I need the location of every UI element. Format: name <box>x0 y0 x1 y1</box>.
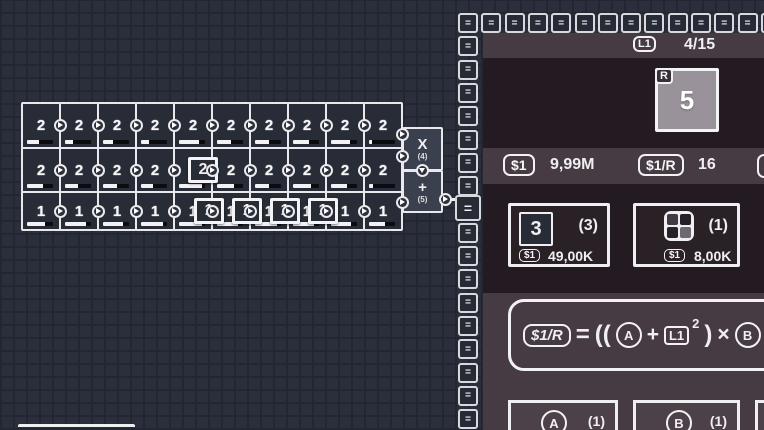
conveyor-tile: = <box>551 13 571 33</box>
cell-progress-bar <box>141 222 167 226</box>
belt-connector-icon <box>282 164 295 177</box>
conveyor-tile: = <box>458 60 478 80</box>
conveyor-tile: = <box>458 13 478 33</box>
belt-connector-icon <box>168 164 181 177</box>
cell-value: 2 <box>151 117 159 134</box>
cell-value: 2 <box>379 117 387 134</box>
conveyor-tile: = <box>458 269 478 289</box>
conveyor-tile: = <box>621 13 641 33</box>
belt-connector-icon <box>244 119 257 132</box>
rate-value: 16 <box>698 156 716 174</box>
tile3-cost: 49,00K <box>548 248 593 264</box>
cell-progress-bar <box>65 222 91 226</box>
formula-text: (( <box>595 321 611 349</box>
cell-progress-bar <box>179 184 205 188</box>
upgrade-card-cutoff[interactable] <box>755 400 764 430</box>
cell-value: 2 <box>341 162 349 179</box>
tile3-count: (3) <box>578 217 598 235</box>
cell-progress-bar <box>331 140 357 144</box>
cell-progress-bar <box>141 140 167 144</box>
card-a-count: (1) <box>588 413 605 429</box>
cell-value: 1 <box>37 203 45 220</box>
stats-bar: $1 9,99M $1/R 16 <box>483 148 764 184</box>
cutoff-badge <box>757 154 764 178</box>
belt-connector-icon <box>244 205 257 218</box>
cell-value: 2 <box>75 117 83 134</box>
rate-formula: $1/R =((A+L12)×B) <box>508 299 764 371</box>
formula-result-badge: $1/R <box>523 324 571 347</box>
belt-connector-icon <box>92 164 105 177</box>
tile3-preview: 3 <box>519 212 553 246</box>
card-b-count: (1) <box>710 413 727 429</box>
cell-progress-bar <box>293 140 319 144</box>
cell-value: 2 <box>113 117 121 134</box>
board-cost-badge: $1 <box>664 249 685 262</box>
shop-card-tile3[interactable]: 3 (3) $1 49,00K <box>508 203 610 267</box>
cell-value: 2 <box>189 117 197 134</box>
belt-connector-icon <box>54 205 67 218</box>
cell-value: 2 <box>227 162 235 179</box>
conveyor-tile: = <box>458 339 478 359</box>
cell-progress-bar <box>141 184 167 188</box>
offscreen-box-edge <box>18 424 135 430</box>
multiply-label: X <box>417 137 427 152</box>
money-badge: $1 <box>503 154 535 176</box>
cell-progress-bar <box>65 140 91 144</box>
board-count: (1) <box>708 217 728 235</box>
circled-a-icon: A <box>616 322 642 348</box>
add-count: (5) <box>418 195 428 204</box>
cell-progress-bar <box>27 184 53 188</box>
multiply-count: (4) <box>418 152 428 161</box>
belt-connector-icon <box>439 193 452 206</box>
conveyor-tile: = <box>644 13 664 33</box>
belt-connector-icon <box>396 128 409 141</box>
cell-progress-bar <box>293 184 319 188</box>
conveyor-tile: = <box>458 153 478 173</box>
cell-value: 2 <box>75 162 83 179</box>
belt-connector-icon <box>282 205 295 218</box>
cell-progress-bar <box>255 140 281 144</box>
belt-connector-icon <box>54 119 67 132</box>
cell-value: 2 <box>151 162 159 179</box>
belt-connector-icon <box>92 119 105 132</box>
formula-exponent: 2 <box>692 316 699 331</box>
conveyor-tile: = <box>575 13 595 33</box>
cell-value: 1 <box>379 203 387 220</box>
belt-connector-icon <box>282 119 295 132</box>
conveyor-tile: = <box>458 106 478 126</box>
formula-operator: + <box>647 323 659 347</box>
formula-section: $1/R =((A+L12)×B) A (1) B (1) <box>483 293 764 430</box>
cell-progress-bar <box>103 222 129 226</box>
down-connector-icon <box>416 164 429 177</box>
upgrade-card-b[interactable]: B (1) <box>633 400 740 430</box>
conveyor-tile: = <box>458 409 478 429</box>
add-label: + <box>418 180 427 195</box>
conveyor-tile: = <box>458 293 478 313</box>
belt-connector-icon <box>396 150 409 163</box>
conveyor-tile: = <box>668 13 688 33</box>
conveyor-tile: = <box>481 13 501 33</box>
cell-progress-bar <box>27 222 53 226</box>
conveyor-tile: = <box>458 83 478 103</box>
belt-connector-icon <box>168 119 181 132</box>
belt-connector-icon <box>206 119 219 132</box>
board-grid-icon <box>664 211 694 241</box>
cell-value: 2 <box>303 162 311 179</box>
conveyor-tile: = <box>714 13 734 33</box>
cell-value: 2 <box>113 162 121 179</box>
circled-b-icon: B <box>735 322 761 348</box>
panel-header: L1 4/15 <box>483 33 764 58</box>
cell-value: 2 <box>303 117 311 134</box>
cell-value: 2 <box>37 117 45 134</box>
conveyor-tile: = <box>458 386 478 406</box>
belt-connector-icon <box>320 164 333 177</box>
belt-connector-icon <box>358 119 371 132</box>
symbol-b-icon: B <box>666 410 692 430</box>
conveyor-tile: = <box>528 13 548 33</box>
level-badge: L1 <box>633 36 656 52</box>
level-progress: 4/15 <box>684 36 715 54</box>
cell-value: 2 <box>341 117 349 134</box>
reward-value: 5 <box>680 85 694 116</box>
cell-value: 2 <box>227 117 235 134</box>
conveyor-tile: = <box>458 130 478 150</box>
belt-connector-icon <box>130 205 143 218</box>
formula-text: = <box>576 321 590 349</box>
conveyor-tile: = <box>458 223 478 243</box>
cell-value: 2 <box>37 162 45 179</box>
symbol-a-icon: A <box>541 410 567 430</box>
belt-connector-icon <box>130 119 143 132</box>
cell-value: 1 <box>75 203 83 220</box>
shop-card-board[interactable]: (1) $1 8,00K <box>633 203 740 267</box>
reward-section: R 5 <box>483 58 764 148</box>
belt-connector-icon <box>320 119 333 132</box>
conveyor-tile: = <box>458 363 478 383</box>
cell-progress-bar <box>217 184 243 188</box>
game-screen: 2 2 2 2 2 2 2 2 2 2 2 2 2 2 2 2 2 2 2 2 … <box>0 0 764 430</box>
conveyor-tile: = <box>598 13 618 33</box>
cell-progress-bar <box>369 222 395 226</box>
conveyor-tile: = <box>458 176 478 196</box>
belt-connector-icon <box>244 164 257 177</box>
conveyor-tile: = <box>458 316 478 336</box>
cell-value: 2 <box>265 162 273 179</box>
conveyor-tile: = <box>738 13 758 33</box>
money-value: 9,99M <box>550 156 594 174</box>
cell-progress-bar <box>179 140 205 144</box>
board-cost: 8,00K <box>694 248 731 264</box>
conveyor-tile: = <box>505 13 525 33</box>
cell-value: 2 <box>379 162 387 179</box>
cell-value: 1 <box>151 203 159 220</box>
belt-connector-icon <box>358 205 371 218</box>
cell-progress-bar <box>255 184 281 188</box>
belt-connector-icon <box>168 205 181 218</box>
cell-progress-bar <box>217 140 243 144</box>
reward-badge: R <box>655 68 673 84</box>
cell-progress-bar <box>27 140 53 144</box>
cell-progress-bar <box>65 184 91 188</box>
upgrade-card-a[interactable]: A (1) <box>508 400 618 430</box>
reward-tile[interactable]: R 5 <box>655 68 719 132</box>
level-box-icon: L1 <box>664 326 689 345</box>
cell-progress-bar <box>103 184 129 188</box>
belt-connector-icon <box>320 205 333 218</box>
cell-value: 2 <box>265 117 273 134</box>
belt-connector-icon <box>206 164 219 177</box>
belt-connector-icon <box>358 164 371 177</box>
conveyor-tile: = <box>458 246 478 266</box>
conveyor-tile: = <box>691 13 711 33</box>
belt-connector-icon <box>206 205 219 218</box>
conveyor-tile: = <box>458 36 478 56</box>
belt-connector-icon <box>396 196 409 209</box>
conveyor-input-tile[interactable]: = <box>455 195 481 221</box>
tile3-cost-badge: $1 <box>519 249 540 262</box>
formula-operator: × <box>717 323 729 347</box>
cell-value: 1 <box>341 203 349 220</box>
cell-value: 1 <box>113 203 121 220</box>
belt-connector-icon <box>130 164 143 177</box>
rate-badge: $1/R <box>638 154 684 176</box>
belt-connector-icon <box>92 205 105 218</box>
cell-progress-bar <box>369 140 395 144</box>
cell-progress-bar <box>369 184 395 188</box>
belt-connector-icon <box>54 164 67 177</box>
cell-progress-bar <box>331 184 357 188</box>
cell-progress-bar <box>103 140 129 144</box>
shop-section: 3 (3) $1 49,00K (1) $1 8,00K <box>483 184 764 293</box>
formula-text: ) <box>704 321 712 349</box>
